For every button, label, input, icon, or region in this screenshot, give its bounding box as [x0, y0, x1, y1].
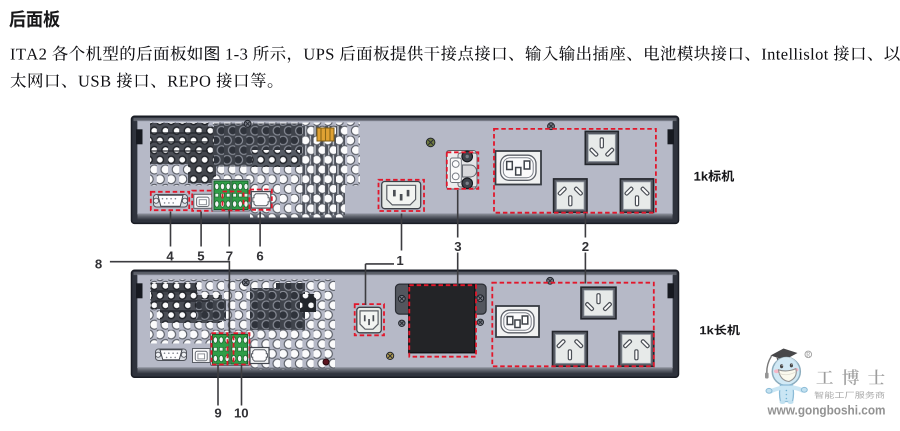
svg-text:2: 2: [582, 239, 589, 254]
svg-text:8: 8: [95, 256, 102, 271]
svg-text:1: 1: [396, 253, 403, 268]
svg-text:www.gongboshi.com: www.gongboshi.com: [767, 403, 886, 418]
svg-text:6: 6: [256, 249, 263, 264]
svg-text:5: 5: [197, 249, 204, 264]
svg-text:10: 10: [234, 406, 249, 421]
svg-text:4: 4: [166, 249, 174, 264]
svg-text:R: R: [806, 352, 811, 359]
svg-text:3: 3: [454, 239, 461, 254]
svg-text:7: 7: [226, 249, 233, 264]
svg-text:9: 9: [214, 406, 221, 421]
